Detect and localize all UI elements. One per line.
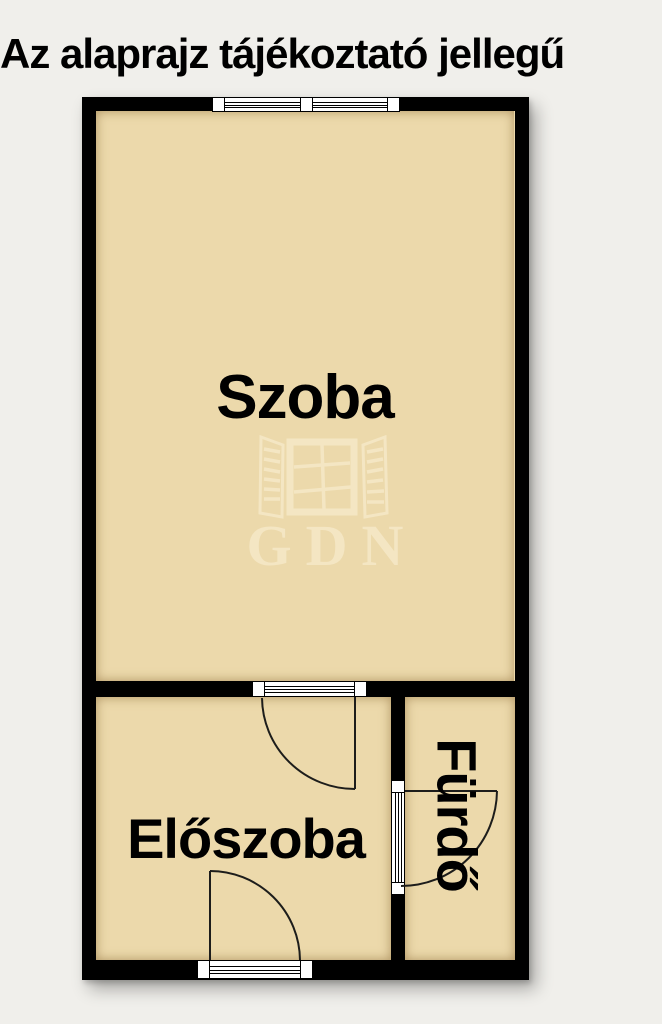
room-label-szoba: Szoba (96, 362, 514, 433)
room-label-furdo: Fürdő (425, 738, 490, 892)
room-label-eloszoba: Előszoba (96, 806, 396, 871)
entry-door-swing-arc (210, 871, 300, 960)
szoba-door-swing-arc (262, 698, 355, 789)
